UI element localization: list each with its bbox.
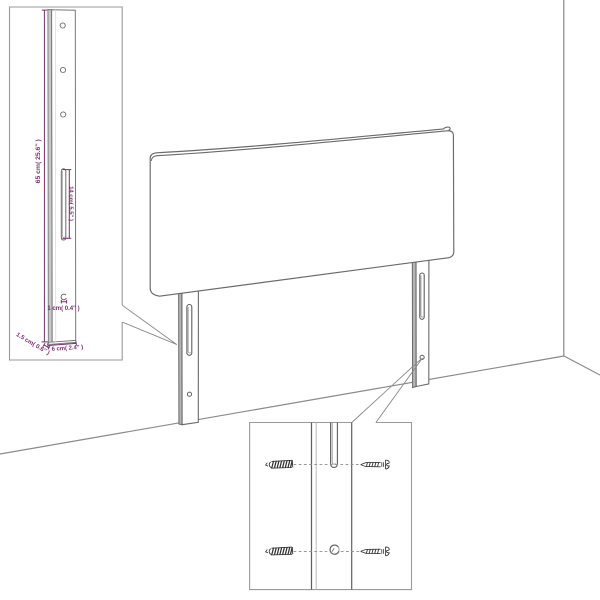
svg-text:65 cm( 25.6'' ): 65 cm( 25.6'' ): [35, 139, 42, 183]
svg-text:1 cm( 0.4'' ): 1 cm( 0.4'' ): [47, 306, 79, 312]
svg-text:14 cm( 5.5'' ): 14 cm( 5.5'' ): [68, 186, 74, 221]
